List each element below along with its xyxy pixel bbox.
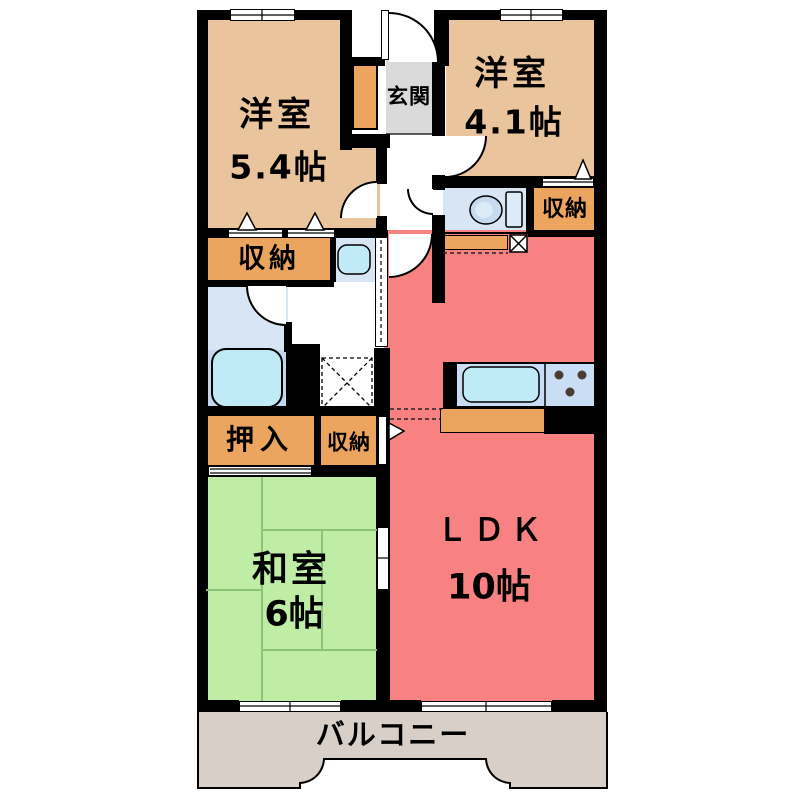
door-closet-ldk (378, 416, 387, 465)
kitchen-counter (455, 362, 597, 408)
wall-kitchen-cap (443, 362, 457, 408)
bathroom-floor-lower (206, 350, 288, 412)
wall-right (594, 10, 607, 712)
toilet-shelf-strip (443, 235, 508, 250)
wall-toilet-closet (526, 186, 534, 234)
wall-hall-left-a (376, 148, 387, 184)
wall-oshiire-closet (314, 414, 321, 466)
japanese-room-area: 6帖 (264, 598, 323, 633)
closet-by-toilet-name: 収納 (542, 199, 588, 221)
oshiire-name: 押入 (226, 426, 294, 454)
wall-under-washroom (197, 406, 389, 416)
wall-entry-recess-left (340, 10, 352, 150)
vanity-floor (334, 236, 380, 282)
wall-toilet-bottom (528, 230, 595, 237)
toilet-room-floor (443, 186, 528, 233)
wall-top-2 (295, 10, 344, 20)
window-ldk (421, 701, 552, 712)
wall-stove-block (544, 406, 596, 434)
wall-top-3 (446, 10, 502, 20)
ldk-area: 10帖 (447, 571, 531, 606)
floor-plan: 洋室 5.4帖 洋室 4.1帖 玄関 収納 収納 押入 収納 和室 6帖 ＬＤＫ… (0, 0, 800, 800)
wall-under-entrance (340, 134, 390, 148)
ldk-name: ＬＤＫ (437, 516, 548, 547)
wall-bottom-3 (552, 700, 607, 712)
window-japanese-room (239, 701, 341, 712)
room1-name: 洋室 (239, 98, 315, 132)
closet-by-ldk-name: 収納 (327, 433, 371, 454)
wall-top-1 (197, 10, 232, 20)
entrance-door-leaf (381, 10, 389, 60)
balcony-notch (299, 758, 511, 789)
kitchen-bar (440, 408, 546, 433)
wall-closet-vanity (330, 236, 336, 282)
closet-room1-door-a (228, 229, 283, 238)
closet-top-left-name: 収納 (238, 246, 300, 273)
entrance-name: 玄関 (387, 87, 431, 108)
window-room2 (500, 9, 563, 21)
closet-room1-door-b (287, 229, 335, 238)
sliding-door-washroom-ldk (375, 237, 388, 347)
closet-room2-door (542, 178, 594, 187)
room2-name: 洋室 (474, 57, 550, 91)
sliding-door-washitsu-ldk (377, 527, 389, 590)
wall-bottom-1 (197, 700, 239, 712)
room2-area: 4.1帖 (464, 106, 563, 139)
ldk-floor (384, 230, 597, 704)
wall-hall-right-b (432, 215, 445, 303)
shoe-cabinet (352, 64, 378, 130)
japanese-room-name: 和室 (252, 552, 330, 588)
wall-left (197, 10, 208, 712)
wall-bath-chunk (286, 344, 320, 412)
wall-entry-recess-sill (340, 57, 385, 66)
window-room1 (230, 9, 295, 21)
wall-top-4 (561, 10, 597, 20)
balcony-name: バルコニー (316, 721, 470, 750)
wall-entrance-room2 (432, 60, 445, 136)
room1-area: 5.4帖 (229, 151, 328, 184)
sliding-door-oshiire (208, 466, 312, 476)
